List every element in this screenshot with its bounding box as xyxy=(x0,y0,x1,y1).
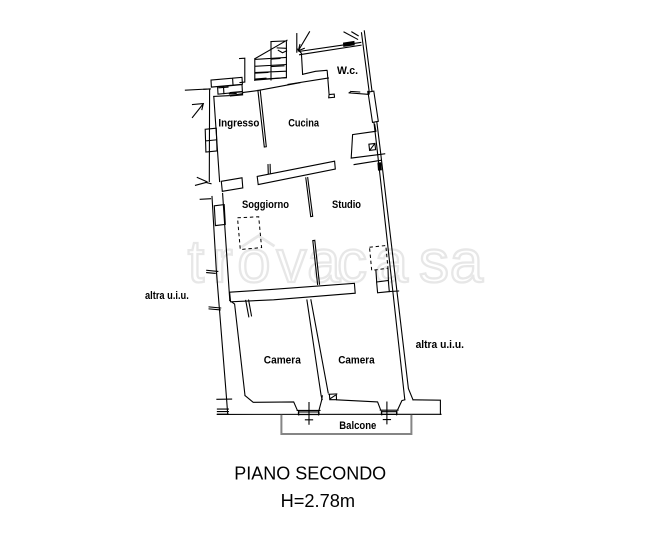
svg-text:altra u.i.u.: altra u.i.u. xyxy=(145,290,189,302)
svg-text:Studio: Studio xyxy=(332,199,361,211)
svg-text:Camera: Camera xyxy=(264,354,302,366)
svg-text:Cucina: Cucina xyxy=(288,118,320,130)
svg-text:Balcone: Balcone xyxy=(339,420,376,432)
svg-text:W.c.: W.c. xyxy=(337,65,358,77)
svg-text:H=2.78m: H=2.78m xyxy=(281,490,356,511)
svg-text:PIANO SECONDO: PIANO SECONDO xyxy=(234,463,386,484)
svg-text:Camera: Camera xyxy=(338,354,375,366)
svg-text:Ingresso: Ingresso xyxy=(218,117,259,129)
svg-text:Soggiorno: Soggiorno xyxy=(242,199,289,211)
svg-text:altra u.i.u.: altra u.i.u. xyxy=(416,339,464,351)
